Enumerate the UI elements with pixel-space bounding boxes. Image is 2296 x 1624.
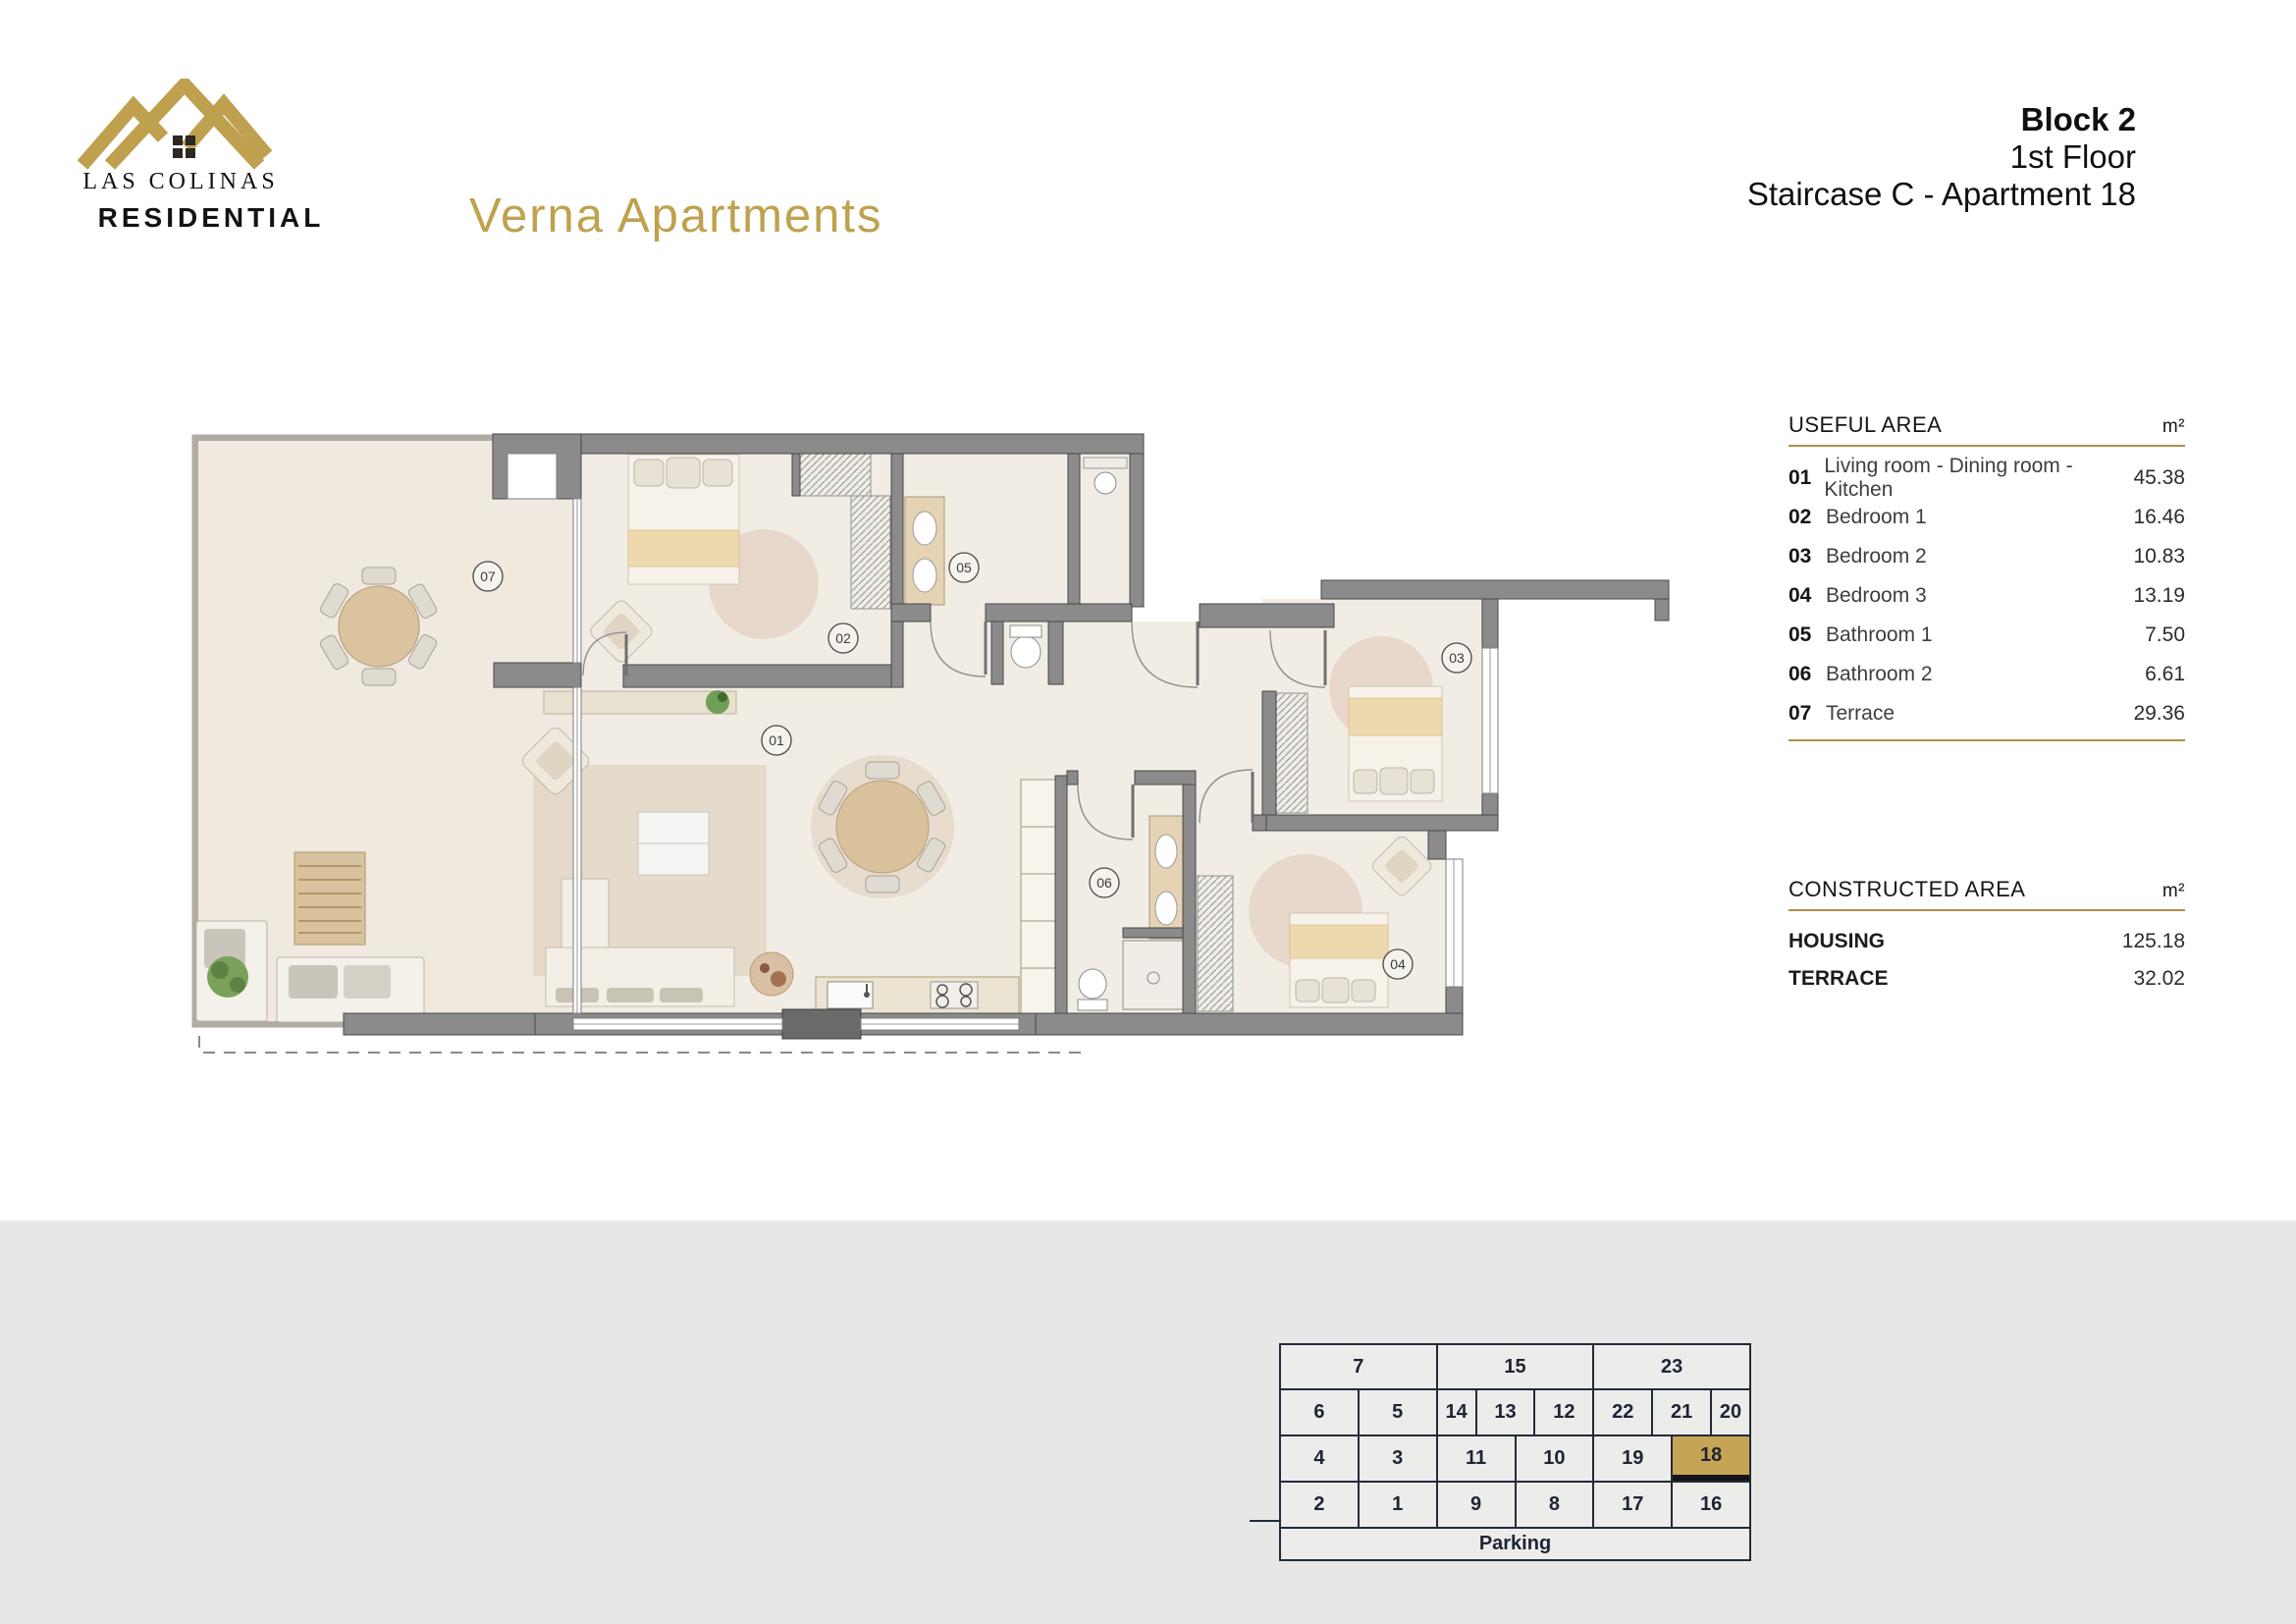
parking-cell: 1 xyxy=(1360,1483,1436,1527)
useful-area-row: 03Bedroom 210.83 xyxy=(1789,537,2185,576)
parking-cell: 10 xyxy=(1517,1436,1593,1481)
svg-text:07: 07 xyxy=(480,568,496,584)
useful-area-row: 04Bedroom 313.19 xyxy=(1789,576,2185,616)
parking-cell: 11 xyxy=(1438,1436,1515,1481)
svg-text:01: 01 xyxy=(769,732,784,748)
constructed-area-unit: m² xyxy=(2163,881,2185,902)
parking-cell: 19 xyxy=(1594,1436,1671,1481)
footer-strip: N BLOQUE 2 xyxy=(0,1220,2296,1624)
constructed-label: TERRACE xyxy=(1789,967,1889,991)
room-number: 05 xyxy=(1789,623,1826,647)
constructed-value: 125.18 xyxy=(2122,930,2185,953)
parking-cell: 6 xyxy=(1281,1390,1358,1435)
parking-cell: 20 xyxy=(1712,1390,1749,1435)
room-name: Terrace xyxy=(1826,702,1895,726)
svg-text:04: 04 xyxy=(1390,956,1406,972)
parking-cell: 15 xyxy=(1438,1345,1593,1388)
room-name: Bedroom 2 xyxy=(1826,545,1927,568)
parking-cell: 14 xyxy=(1438,1390,1475,1435)
room-number: 01 xyxy=(1789,466,1824,490)
floor-plan: 07 02 05 01 03 06 04 xyxy=(187,427,1679,1065)
constructed-area-header: CONSTRUCTED AREA m² xyxy=(1789,877,2185,911)
room-label-05: 05 xyxy=(949,553,979,582)
svg-text:03: 03 xyxy=(1449,650,1465,666)
plant-icon xyxy=(207,956,248,998)
room-name: Bedroom 1 xyxy=(1826,506,1927,529)
parking-cell: 22 xyxy=(1594,1390,1651,1435)
useful-area-table: USEFUL AREA m² 01Living room - Dining ro… xyxy=(1789,412,2185,741)
room-name: Living room - Dining room - Kitchen xyxy=(1824,455,2133,502)
svg-text:06: 06 xyxy=(1096,875,1112,891)
parking-cell: 23 xyxy=(1594,1345,1749,1388)
useful-area-row: 06Bathroom 26.61 xyxy=(1789,655,2185,694)
useful-area-title: USEFUL AREA xyxy=(1789,412,1942,438)
dining-table xyxy=(836,781,929,873)
room-area-value: 16.46 xyxy=(2133,506,2185,529)
parking-cell: 21 xyxy=(1653,1390,1710,1435)
parking-cell: 2 xyxy=(1281,1483,1358,1527)
floor-label: 1st Floor xyxy=(1747,138,2136,176)
svg-text:05: 05 xyxy=(956,560,972,575)
room-number: 06 xyxy=(1789,663,1826,686)
room-number: 03 xyxy=(1789,545,1826,568)
constructed-area-table: CONSTRUCTED AREA m² HOUSING125.18TERRACE… xyxy=(1789,877,2185,998)
room-name: Bathroom 2 xyxy=(1826,663,1933,686)
wardrobe-icon xyxy=(798,454,871,496)
parking-cell: 9 xyxy=(1438,1483,1515,1527)
room-label-06: 06 xyxy=(1090,868,1119,897)
parking-divider-line xyxy=(1250,1520,1281,1522)
useful-area-row: 07Terrace29.36 xyxy=(1789,694,2185,733)
parking-cell: 13 xyxy=(1477,1390,1534,1435)
parking-cell: 12 xyxy=(1535,1390,1592,1435)
page-title: Verna Apartments xyxy=(469,189,883,244)
logo-name: LAS COLINAS xyxy=(57,169,304,195)
toilet-icon xyxy=(1079,969,1106,999)
useful-area-row: 02Bedroom 116.46 xyxy=(1789,498,2185,537)
pillar xyxy=(782,1009,861,1039)
kitchen-cabinets xyxy=(1021,780,1055,1013)
room-number: 04 xyxy=(1789,584,1826,608)
useful-area-header: USEFUL AREA m² xyxy=(1789,412,2185,447)
useful-area-bottom-rule xyxy=(1789,739,2185,741)
room-number: 02 xyxy=(1789,506,1826,529)
room-area-value: 6.61 xyxy=(2145,663,2185,686)
parking-cell: 5 xyxy=(1360,1390,1436,1435)
room-label-02: 02 xyxy=(828,623,858,653)
parking-cell: 7 xyxy=(1281,1345,1436,1388)
wardrobe-icon xyxy=(851,496,890,609)
washbasin-icon xyxy=(1095,472,1116,494)
wardrobe-icon xyxy=(1276,693,1308,813)
parking-cell: 4 xyxy=(1281,1436,1358,1481)
parking-cell: 16 xyxy=(1673,1483,1749,1527)
las-colinas-logo-icon xyxy=(69,79,363,177)
room-area-value: 10.83 xyxy=(2133,545,2185,568)
logo-subname: RESIDENTIAL xyxy=(69,202,353,234)
staircase-apartment-label: Staircase C - Apartment 18 xyxy=(1747,176,2136,213)
parking-cell-highlighted: 18 xyxy=(1673,1436,1749,1481)
parking-cell: 17 xyxy=(1594,1483,1671,1527)
useful-area-row: 01Living room - Dining room - Kitchen45.… xyxy=(1789,459,2185,498)
constructed-area-row: TERRACE32.02 xyxy=(1789,960,2185,998)
parking-cell: 3 xyxy=(1360,1436,1436,1481)
wardrobe-icon xyxy=(1198,876,1233,1011)
room-label-03: 03 xyxy=(1442,643,1471,673)
room-name: Bedroom 3 xyxy=(1826,584,1927,608)
parking-grid: 7152365141312222120431110191821981716Par… xyxy=(1279,1343,1751,1561)
constructed-area-row: HOUSING125.18 xyxy=(1789,923,2185,960)
block-label: Block 2 xyxy=(1747,101,2136,138)
constructed-area-rows: HOUSING125.18TERRACE32.02 xyxy=(1789,911,2185,998)
constructed-label: HOUSING xyxy=(1789,930,1885,953)
constructed-value: 32.02 xyxy=(2133,967,2185,991)
useful-area-row: 05Bathroom 17.50 xyxy=(1789,616,2185,655)
useful-area-rows: 01Living room - Dining room - Kitchen45.… xyxy=(1789,447,2185,733)
room-area-value: 45.38 xyxy=(2133,466,2185,490)
room-label-04: 04 xyxy=(1383,949,1413,979)
room-number: 07 xyxy=(1789,702,1826,726)
room-area-value: 29.36 xyxy=(2133,702,2185,726)
shower-icon xyxy=(1123,941,1183,1009)
brochure-page: LAS COLINAS RESIDENTIAL Verna Apartments… xyxy=(0,0,2296,1624)
room-area-value: 13.19 xyxy=(2133,584,2185,608)
constructed-area-title: CONSTRUCTED AREA xyxy=(1789,877,2025,902)
parking-footer-label: Parking xyxy=(1281,1529,1749,1559)
room-label-01: 01 xyxy=(762,726,791,755)
useful-area-unit: m² xyxy=(2163,416,2185,438)
block-info: Block 2 1st Floor Staircase C - Apartmen… xyxy=(1747,101,2136,213)
room-name: Bathroom 1 xyxy=(1826,623,1933,647)
svg-text:02: 02 xyxy=(835,630,851,646)
room-area-value: 7.50 xyxy=(2145,623,2185,647)
toilet-icon xyxy=(1011,636,1041,668)
parking-cell: 8 xyxy=(1517,1483,1593,1527)
room-label-07: 07 xyxy=(473,562,503,591)
